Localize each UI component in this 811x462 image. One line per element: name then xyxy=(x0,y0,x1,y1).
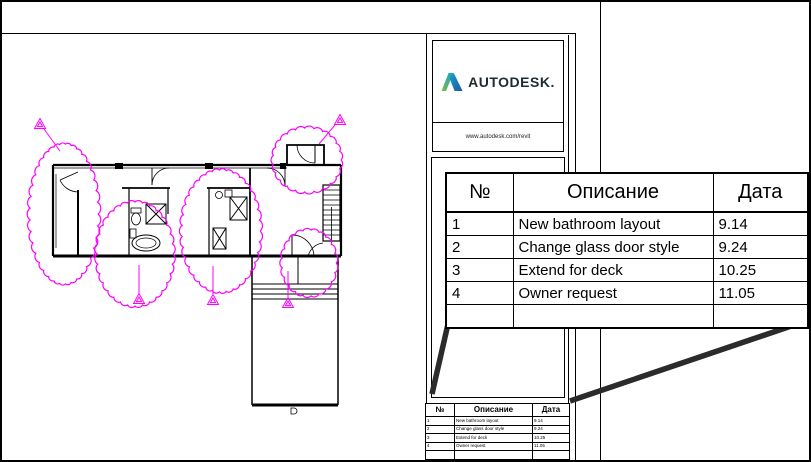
desc-cell: Owner request xyxy=(513,282,713,305)
sheet-top-line xyxy=(2,33,575,34)
num-cell: 2 xyxy=(446,236,513,259)
bath2-shower xyxy=(230,197,247,220)
num-cell: 4 xyxy=(446,282,513,305)
titleblock-logo-box: AUTODESK. www.autodesk.com/revit xyxy=(432,40,564,152)
table-row: 4 Owner request 11.05 xyxy=(426,442,570,451)
bath1-tub xyxy=(132,235,160,251)
desc-cell: Extend for deck xyxy=(513,259,713,282)
entry-recess xyxy=(287,145,324,165)
desc-cell xyxy=(513,305,713,329)
desc-cell: Change glass door style xyxy=(513,236,713,259)
small-cell: 3 xyxy=(426,434,455,443)
small-cell: New bathroom layout xyxy=(455,417,533,426)
small-cell: 2 xyxy=(426,425,455,434)
revision-triangle-icon xyxy=(208,295,219,305)
titleblock-frame-left xyxy=(426,33,427,462)
num-header: № xyxy=(446,173,513,212)
table-row: 1 New bathroom layout 9.14 xyxy=(426,417,570,426)
titleblock-revision-table: № Описание Дата 1 New bathroom layout 9.… xyxy=(425,403,570,462)
autodesk-wordmark: AUTODESK. xyxy=(468,74,555,90)
autodesk-url: www.autodesk.com/revit xyxy=(433,122,563,151)
table-header-row: № Описание Дата xyxy=(426,404,570,417)
deck-marker xyxy=(291,408,297,414)
desc-header: Описание xyxy=(513,173,713,212)
revision-cloud-4 xyxy=(271,126,343,194)
revision-cloud-2 xyxy=(95,201,175,308)
bath1-toilet xyxy=(131,208,141,225)
small-cell: 10.25 xyxy=(533,434,570,443)
date-cell: 9.24 xyxy=(713,236,808,259)
num-cell: 1 xyxy=(446,212,513,236)
revision-triangle-icons xyxy=(35,115,346,308)
bath2-toilet xyxy=(216,192,223,199)
small-desc-header: Описание xyxy=(455,404,533,417)
date-cell xyxy=(713,305,808,329)
table-row: 4 Owner request 11.05 xyxy=(446,282,808,305)
table-row: 1 New bathroom layout 9.14 xyxy=(446,212,808,236)
num-cell: 3 xyxy=(446,259,513,282)
table-header-row: № Описание Дата xyxy=(446,173,808,212)
logo-area: AUTODESK. xyxy=(433,41,563,122)
small-date-header: Дата xyxy=(533,404,570,417)
table-row: 3 Extend for deck 10.25 xyxy=(446,259,808,282)
table-row-empty xyxy=(426,451,570,460)
small-cell: 9.24 xyxy=(533,425,570,434)
small-cell: 9.14 xyxy=(533,417,570,426)
glass-door-swing xyxy=(292,235,314,257)
floor-plan-drawing xyxy=(2,2,422,462)
entry-door-swing xyxy=(297,145,315,163)
sheet-page: AUTODESK. www.autodesk.com/revit № Описа… xyxy=(0,0,811,462)
table-row: 3 Extend for deck 10.25 xyxy=(426,434,570,443)
date-cell: 11.05 xyxy=(713,282,808,305)
desc-cell: New bathroom layout xyxy=(513,212,713,236)
revision-cloud-5 xyxy=(280,228,338,297)
date-header: Дата xyxy=(713,173,808,212)
revision-table-callout: № Описание Дата 1 New bathroom layout 9.… xyxy=(445,172,809,329)
num-cell xyxy=(446,305,513,329)
small-cell: 4 xyxy=(426,442,455,451)
small-num-header: № xyxy=(426,404,455,417)
bath2-closet xyxy=(213,228,226,249)
table-row: 2 Change glass door style 9.24 xyxy=(426,425,570,434)
small-cell: 11.05 xyxy=(533,442,570,451)
door-swing-2 xyxy=(152,168,169,185)
revision-triangle-icon xyxy=(335,115,346,125)
bath2-sink xyxy=(225,190,232,197)
table-row-empty xyxy=(446,305,808,329)
table-row: 2 Change glass door style 9.24 xyxy=(446,236,808,259)
small-cell: Extend for deck xyxy=(455,434,533,443)
bath1-sink xyxy=(130,229,136,238)
date-cell: 10.25 xyxy=(713,259,808,282)
small-cell: Owner request xyxy=(455,442,533,451)
revision-triangle-icon xyxy=(35,119,46,129)
room-door-swing xyxy=(60,180,78,192)
room-door-leaf xyxy=(60,172,78,180)
small-cell: Change glass door style xyxy=(455,425,533,434)
autodesk-logo-icon xyxy=(441,72,463,91)
zoom-leader-right xyxy=(570,321,806,401)
revision-triangle-icon xyxy=(134,294,145,304)
small-cell: 1 xyxy=(426,417,455,426)
bath1-shower xyxy=(146,204,166,224)
date-cell: 9.14 xyxy=(713,212,808,236)
